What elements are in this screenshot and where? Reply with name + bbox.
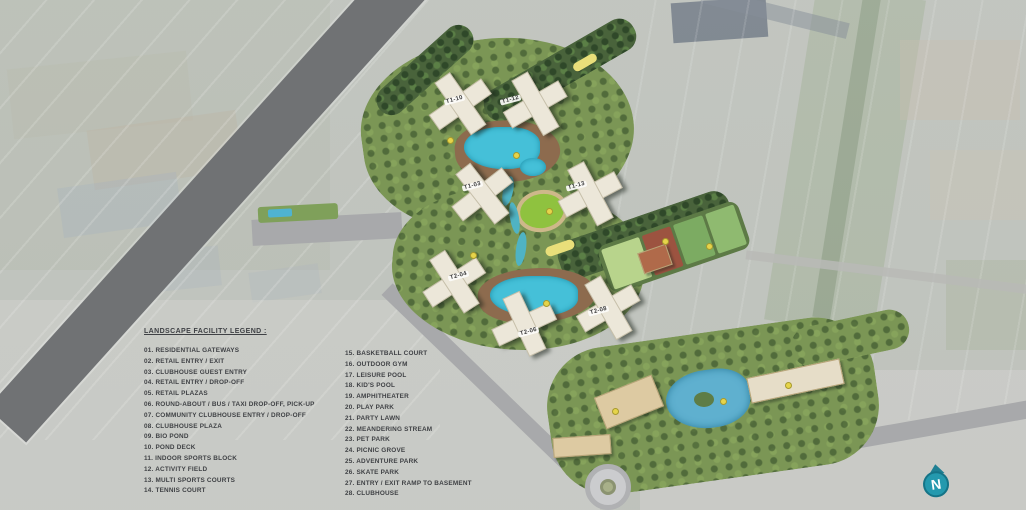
facility-marker xyxy=(612,408,619,415)
legend-item: 16. OUTDOOR GYM xyxy=(345,360,472,371)
roundabout xyxy=(585,464,631,510)
facility-marker xyxy=(470,252,477,259)
facility-marker xyxy=(720,398,727,405)
legend-item: 25. ADVENTURE PARK xyxy=(345,457,472,468)
legend-item: 24. PICNIC GROVE xyxy=(345,446,472,457)
facility-marker xyxy=(706,243,713,250)
legend-item: 20. PLAY PARK xyxy=(345,403,472,414)
legend-item: 11. INDOOR SPORTS BLOCK xyxy=(144,454,315,465)
legend-item: 21. PARTY LAWN xyxy=(345,414,472,425)
legend-item: 05. RETAIL PLAZAS xyxy=(144,389,315,400)
legend-item: 10. POND DECK xyxy=(144,443,315,454)
facility-marker xyxy=(543,300,550,307)
legend-item: 04. RETAIL ENTRY / DROP-OFF xyxy=(144,378,315,389)
facility-marker xyxy=(447,137,454,144)
facility-marker xyxy=(785,382,792,389)
legend-item: 28. CLUBHOUSE xyxy=(345,489,472,500)
legend-item: 18. KID'S POOL xyxy=(345,381,472,392)
facility-marker xyxy=(662,238,669,245)
legend-item: 12. ACTIVITY FIELD xyxy=(144,465,315,476)
legend-column-right: 15. BASKETBALL COURT 16. OUTDOOR GYM 17.… xyxy=(345,349,472,500)
legend-item: 15. BASKETBALL COURT xyxy=(345,349,472,360)
siteplan-canvas: T1-10 T1-12 T1-03 T1-13 T2-04 T2-06 T2-0… xyxy=(0,0,1026,510)
north-label: N xyxy=(921,470,950,499)
legend-item: 13. MULTI SPORTS COURTS xyxy=(144,476,315,487)
legend-item: 19. AMPHITHEATER xyxy=(345,392,472,403)
legend-title: LANDSCAPE FACILITY LEGEND : xyxy=(144,328,315,335)
legend-item: 23. PET PARK xyxy=(345,435,472,446)
legend-item: 09. BIO POND xyxy=(144,432,315,443)
pond-island xyxy=(694,392,714,407)
kids-pool xyxy=(520,158,546,176)
facility-marker xyxy=(513,152,520,159)
facility-marker xyxy=(546,208,553,215)
legend-item: 06. ROUND-ABOUT / BUS / TAXI DROP-OFF, P… xyxy=(144,400,315,411)
roundabout-center xyxy=(600,479,616,495)
legend-item: 08. CLUBHOUSE PLAZA xyxy=(144,422,315,433)
amphitheater-building xyxy=(552,434,611,458)
legend-panel: LANDSCAPE FACILITY LEGEND : 01. RESIDENT… xyxy=(144,328,315,497)
legend-item: 22. MEANDERING STREAM xyxy=(345,425,472,436)
legend-item: 26. SKATE PARK xyxy=(345,468,472,479)
legend-item: 14. TENNIS COURT xyxy=(144,486,315,497)
median-water-feature xyxy=(268,208,292,217)
legend-item: 01. RESIDENTIAL GATEWAYS xyxy=(144,346,315,357)
legend-item: 03. CLUBHOUSE GUEST ENTRY xyxy=(144,368,315,379)
legend-item: 17. LEISURE POOL xyxy=(345,371,472,382)
legend-item: 07. COMMUNITY CLUBHOUSE ENTRY / DROP-OFF xyxy=(144,411,315,422)
legend-column-left: 01. RESIDENTIAL GATEWAYS 02. RETAIL ENTR… xyxy=(144,346,315,497)
legend-item: 02. RETAIL ENTRY / EXIT xyxy=(144,357,315,368)
north-compass: N xyxy=(918,462,957,506)
legend-item: 27. ENTRY / EXIT RAMP TO BASEMENT xyxy=(345,479,472,490)
